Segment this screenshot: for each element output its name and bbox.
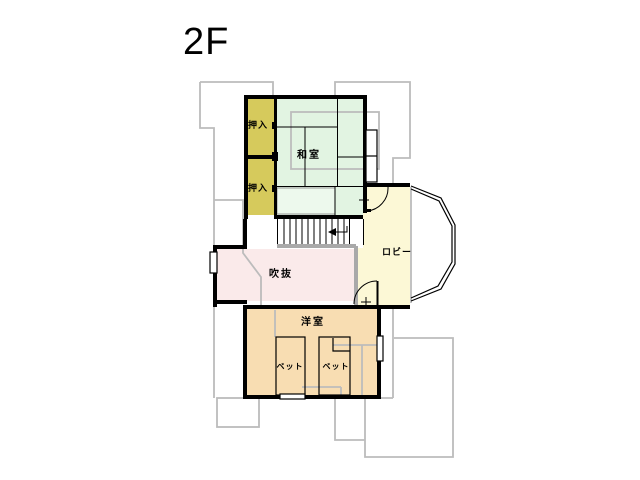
closet-door-tick-top bbox=[272, 122, 277, 129]
bed-right-label: ベット bbox=[323, 362, 350, 371]
wall-atrium-bottom bbox=[213, 300, 247, 304]
floorplan-canvas: 2F 押入 押入 和室 ロビー 吹抜 洋室 ベット ベット bbox=[0, 0, 640, 480]
window-western-right bbox=[377, 336, 383, 361]
floor-title: 2F bbox=[183, 21, 229, 63]
wall-middle-horizontal bbox=[243, 305, 410, 309]
floorplan-svg: 2F 押入 押入 和室 ロビー 吹抜 洋室 ベット ベット bbox=[0, 0, 640, 480]
wall-western-bottom bbox=[243, 395, 381, 399]
tatami-strip bbox=[277, 188, 335, 214]
window-western-bottom bbox=[280, 394, 305, 399]
wall-western-left bbox=[243, 305, 247, 399]
washitsu-label: 和室 bbox=[296, 148, 321, 161]
lobby-label: ロビー bbox=[382, 246, 412, 257]
wall-closet-right bbox=[274, 95, 277, 219]
bay-window-outer-line bbox=[411, 186, 455, 301]
fukinuke-label: 吹抜 bbox=[269, 267, 293, 280]
closet-door-tick-bottom bbox=[272, 185, 277, 192]
bay-window bbox=[411, 186, 455, 301]
bed-left-label: ベット bbox=[277, 362, 304, 371]
youshitsu-label: 洋室 bbox=[301, 315, 325, 328]
underlay-left-vertical bbox=[200, 82, 214, 398]
wall-top bbox=[244, 95, 367, 99]
stairs bbox=[277, 219, 350, 245]
wall-washitsu-bottom bbox=[275, 215, 363, 219]
oshiire-bottom-label: 押入 bbox=[248, 182, 268, 193]
underlay-top-left bbox=[200, 82, 273, 96]
window-atrium-left bbox=[210, 252, 217, 273]
wall-atrium-top bbox=[213, 245, 247, 249]
wall-stair-left bbox=[243, 219, 247, 249]
oshiire-top-label: 押入 bbox=[248, 119, 268, 130]
underlay-bottom-left-rect bbox=[217, 398, 259, 427]
wall-lobby-top bbox=[363, 183, 410, 187]
bay-window-inner-line bbox=[411, 189, 452, 298]
